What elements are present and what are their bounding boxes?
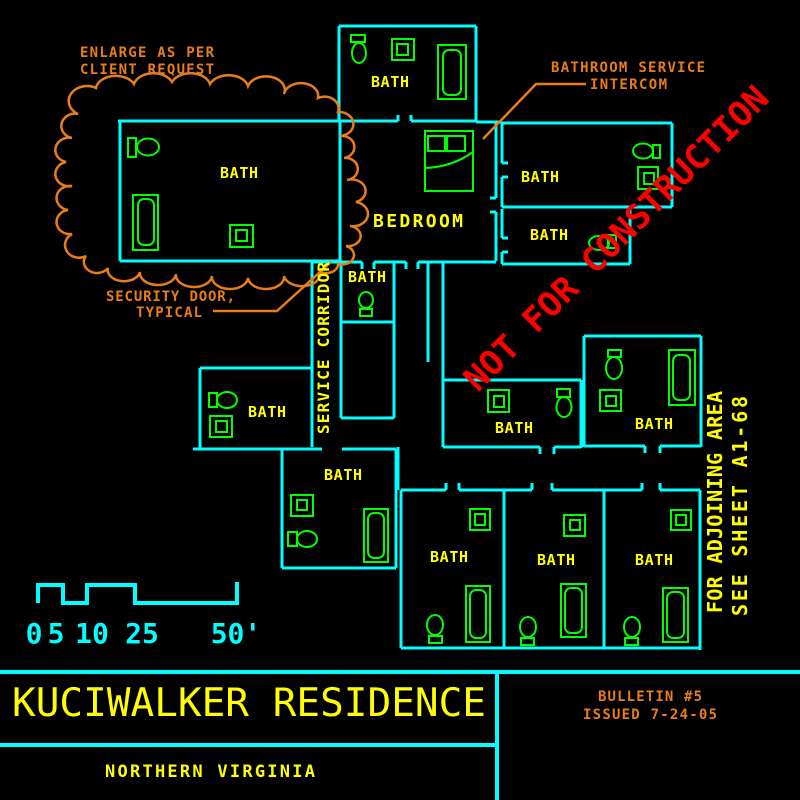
drawing-title: KUCIWALKER RESIDENCE [12, 681, 486, 726]
floor-plan-canvas: BATH BATH BATH BATH BATH BATH BATH BATH … [0, 0, 800, 800]
annotation-enlarge-line1: ENLARGE AS PER [80, 45, 215, 61]
scale-label-0: 0 [26, 617, 43, 650]
room-label-bath: BATH [521, 168, 559, 186]
sink-icon [210, 416, 232, 437]
sink-icon [671, 510, 691, 530]
toilet-icon [557, 389, 572, 417]
room-label-bath: BATH [371, 73, 409, 91]
room-label-service-corridor: SERVICE CORRIDOR [314, 262, 333, 434]
bed-icon [425, 131, 473, 191]
bathtub-icon [438, 45, 466, 99]
room-label-bath: BATH [348, 268, 386, 286]
drawing-location: NORTHERN VIRGINIA [105, 762, 315, 782]
annotation-intercom-line2: INTERCOM [590, 77, 667, 93]
scale-label-5: 5 [48, 617, 65, 650]
bathtub-icon [561, 584, 586, 637]
room-label-bath: BATH [220, 164, 258, 182]
annotation-security-line2: TYPICAL [136, 305, 202, 321]
toilet-icon [351, 35, 366, 63]
scale-label-25: 25 [125, 617, 159, 650]
annotation-enlarge-line2: CLIENT REQUEST [80, 62, 214, 78]
room-label-bath: BATH [537, 551, 575, 569]
toilet-icon [427, 615, 443, 643]
sink-icon [230, 225, 253, 247]
intercom-leader-line [483, 84, 586, 139]
title-block: KUCIWALKER RESIDENCE NORTHERN VIRGINIA B… [0, 672, 800, 800]
room-label-bedroom: BEDROOM [373, 211, 463, 232]
scale-label-50: 50' [211, 617, 262, 650]
side-note-line1: FOR ADJOINING AREA [703, 391, 727, 613]
room-label-bath: BATH [530, 226, 568, 244]
room-label-bath: BATH [430, 548, 468, 566]
scale-bar: 0 5 10 25 50' [26, 582, 262, 650]
toilet-icon [624, 617, 640, 645]
scale-bar-graphic [38, 582, 237, 603]
toilet-icon [359, 292, 373, 316]
toilet-icon [633, 144, 660, 159]
annotation-intercom-line1: BATHROOM SERVICE [551, 60, 705, 76]
bathtub-icon [669, 350, 695, 405]
fixtures [128, 35, 695, 645]
toilet-icon [520, 617, 536, 645]
toilet-icon [128, 138, 159, 157]
room-label-bath: BATH [635, 551, 673, 569]
wall-lines [118, 26, 701, 650]
side-note-line2: SEE SHEET A1-68 [728, 396, 752, 616]
sink-icon [392, 39, 414, 60]
bathtub-icon [466, 586, 490, 642]
bulletin-issue-date: ISSUED 7-24-05 [583, 707, 717, 723]
annotation-security-line1: SECURITY DOOR, [106, 289, 235, 305]
sink-icon [291, 495, 313, 516]
sink-icon [564, 515, 585, 536]
bathtub-icon [133, 195, 158, 250]
sink-icon [488, 390, 509, 412]
toilet-icon [209, 392, 237, 408]
adjoining-area-note: FOR ADJOINING AREA SEE SHEET A1-68 [703, 391, 752, 616]
bathtub-icon [663, 588, 688, 642]
sink-icon [600, 390, 621, 411]
room-label-bath: BATH [324, 466, 362, 484]
scale-label-10: 10 [75, 617, 109, 650]
bathtub-icon [364, 509, 388, 562]
room-label-bath: BATH [495, 419, 533, 437]
toilet-icon [288, 531, 317, 547]
room-label-bath: BATH [248, 403, 286, 421]
sink-icon [470, 509, 490, 530]
toilet-icon [606, 350, 622, 379]
room-label-bath: BATH [635, 415, 673, 433]
bulletin-number: BULLETIN #5 [598, 689, 702, 705]
revision-cloud [55, 73, 368, 289]
